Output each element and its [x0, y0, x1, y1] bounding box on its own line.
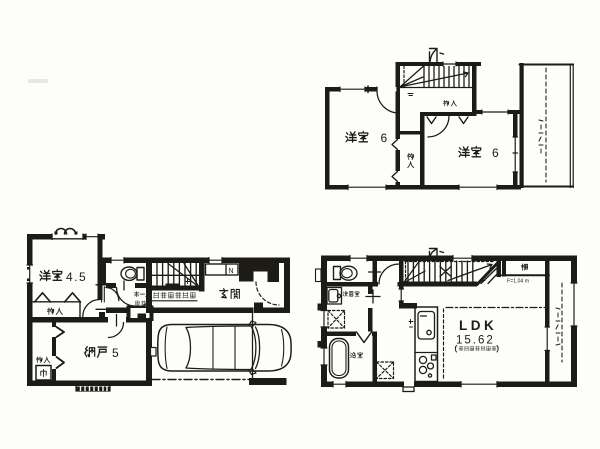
- svg-text:LDK: LDK: [459, 318, 497, 333]
- svg-text:5: 5: [112, 346, 119, 360]
- svg-text:6: 6: [381, 131, 388, 145]
- svg-text:N: N: [229, 268, 234, 275]
- svg-text:6: 6: [492, 146, 499, 160]
- svg-text:4.5: 4.5: [66, 270, 87, 284]
- svg-text:F=1.04 m: F=1.04 m: [507, 279, 529, 285]
- svg-text:15.62: 15.62: [456, 335, 495, 347]
